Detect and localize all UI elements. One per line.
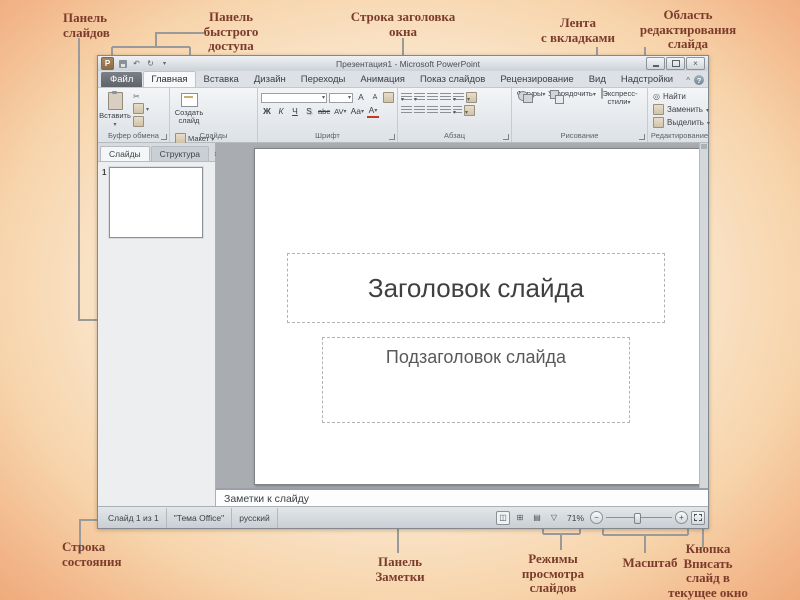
fit-to-window-icon (694, 514, 702, 521)
page: Панель слайдов Панель быстрого доступа С… (0, 0, 800, 600)
change-case-button[interactable]: Aa (350, 106, 365, 117)
window-controls: × (646, 57, 705, 70)
ribbon: Вставить ✂ Буфер обмена Создат (98, 88, 708, 143)
chevron-down-icon (146, 105, 149, 113)
powerpoint-logo-icon[interactable]: P (101, 57, 114, 70)
slide-thumbnail-row: 1 (102, 167, 203, 238)
paste-button[interactable]: Вставить (100, 90, 130, 130)
bullets-button[interactable] (401, 93, 412, 102)
close-button[interactable]: × (686, 57, 705, 70)
slides-panel: Слайды Структура × 1 (98, 143, 216, 508)
annotation-view-modes: Режимы просмотра слайдов (522, 552, 584, 596)
convert-smartart-button[interactable] (464, 105, 475, 116)
align-right-button[interactable] (427, 106, 438, 115)
zoom-slider[interactable] (606, 512, 672, 523)
main-area: Слайды Структура × 1 Заголовок слайда По… (98, 143, 708, 508)
paste-label: Вставить (99, 112, 131, 120)
font-name-select[interactable] (261, 93, 327, 103)
font-group-label: Шрифт (258, 130, 397, 142)
notes-panel[interactable]: Заметки к слайду (216, 488, 708, 508)
chevron-down-icon (542, 89, 545, 98)
format-painter-icon (133, 116, 144, 127)
slide-edit-area: Заголовок слайда Подзаголовок слайда (216, 143, 708, 488)
normal-view-button[interactable]: ◫ (496, 511, 510, 525)
strikethrough-button[interactable]: abc (317, 106, 331, 117)
vertical-scrollbar[interactable] (699, 143, 708, 488)
ribbon-group-clipboard: Вставить ✂ Буфер обмена (98, 88, 170, 142)
dialog-launcher-icon[interactable] (503, 134, 509, 140)
numbering-button[interactable] (414, 93, 425, 102)
replace-label: Заменить (667, 105, 703, 114)
normal-view-icon: ◫ (499, 513, 507, 522)
find-label: Найти (663, 92, 686, 101)
copy-button[interactable] (133, 103, 149, 114)
find-icon: ◎ (653, 92, 660, 101)
tab-file[interactable]: Файл (101, 72, 142, 87)
tab-addins[interactable]: Надстройки (614, 72, 680, 87)
clipboard-icon (108, 92, 123, 110)
find-button[interactable]: ◎Найти (653, 90, 711, 103)
font-color-button[interactable]: А (367, 105, 379, 118)
quick-styles-button[interactable]: Экспресс-стили (596, 90, 642, 130)
minimize-button[interactable] (646, 57, 665, 70)
annotation-ribbon: Лента с вкладками (541, 16, 615, 45)
title-placeholder[interactable]: Заголовок слайда (287, 253, 665, 323)
slide-indicator[interactable]: Слайд 1 из 1 (101, 508, 167, 528)
paragraph-group-label: Абзац (398, 130, 511, 142)
clear-formatting-icon[interactable] (383, 92, 394, 103)
subtitle-placeholder[interactable]: Подзаголовок слайда (322, 337, 630, 423)
ribbon-group-drawing: Фигуры Упорядочить Экспресс-стили Рисова… (512, 88, 648, 142)
annotation-notes-panel: Панель Заметки (375, 555, 424, 584)
dialog-launcher-icon[interactable] (639, 134, 645, 140)
italic-button[interactable]: К (275, 106, 287, 117)
columns-button[interactable] (453, 106, 462, 115)
select-button[interactable]: Выделить (653, 116, 711, 129)
font-size-select[interactable] (329, 93, 353, 103)
character-spacing-button[interactable]: AV (333, 106, 347, 117)
decrease-indent-button[interactable] (427, 93, 438, 102)
slideshow-icon: ▽ (551, 513, 557, 522)
theme-indicator[interactable]: "Тема Office" (167, 508, 232, 528)
tab-insert[interactable]: Вставка (197, 72, 246, 87)
ribbon-group-font: A A Ж К Ч S abc AV Aa А Шрифт (258, 88, 398, 142)
restore-icon (672, 60, 680, 67)
restore-button[interactable] (666, 57, 685, 70)
chevron-down-icon (706, 105, 709, 114)
select-label: Выделить (667, 118, 704, 127)
title-bar[interactable]: P ↶ ↻ Презентация1 - Microsoft PowerPoin… (98, 56, 708, 71)
ribbon-group-editing: ◎Найти Заменить Выделить Редактирование (648, 88, 711, 142)
tab-outline[interactable]: Структура (151, 146, 209, 161)
tab-slides-thumbnails[interactable]: Слайды (100, 146, 150, 161)
reading-view-button[interactable]: ▤ (530, 511, 544, 525)
collapse-ribbon-icon[interactable]: ^ (686, 76, 690, 85)
help-button[interactable]: ? (694, 75, 704, 85)
new-slide-label: Создать слайд (175, 109, 204, 126)
save-icon (119, 60, 127, 68)
format-painter-button[interactable] (133, 116, 149, 127)
slide-thumbnail[interactable] (109, 167, 203, 238)
tab-view[interactable]: Вид (582, 72, 613, 87)
save-button[interactable] (117, 58, 128, 69)
slide-number: 1 (102, 167, 106, 238)
chevron-down-icon (627, 97, 630, 106)
tab-animations[interactable]: Анимация (353, 72, 412, 87)
zoom-slider-thumb[interactable] (634, 513, 641, 524)
cut-button[interactable]: ✂ (133, 93, 149, 101)
language-indicator[interactable]: русский (232, 508, 278, 528)
dialog-launcher-icon[interactable] (161, 134, 167, 140)
annotation-title-bar: Строка заголовка окна (351, 10, 455, 39)
new-slide-icon (181, 93, 198, 107)
annotation-fit-button: Кнопка Вписать слайд в текущее окно (668, 542, 748, 600)
slide-sorter-button[interactable]: ⊞ (513, 511, 527, 525)
slides-panel-tabs: Слайды Структура × (98, 143, 215, 162)
fit-to-window-button[interactable] (691, 511, 705, 525)
quick-styles-label: Экспресс-стили (603, 89, 638, 106)
grow-font-button[interactable]: A (355, 92, 367, 103)
ribbon-group-paragraph: Абзац (398, 88, 512, 142)
align-left-button[interactable] (401, 106, 412, 115)
replace-icon (653, 104, 664, 115)
tab-home[interactable]: Главная (143, 71, 195, 87)
scissors-icon: ✂ (133, 93, 140, 101)
reading-view-icon: ▤ (533, 513, 541, 522)
arrange-button[interactable]: Упорядочить (548, 90, 596, 130)
tab-transitions[interactable]: Переходы (294, 72, 353, 87)
tab-review[interactable]: Рецензирование (493, 72, 580, 87)
undo-icon: ↶ (133, 59, 140, 68)
editing-group-label: Редактирование (648, 130, 711, 142)
shapes-button[interactable]: Фигуры (514, 90, 548, 130)
status-bar: Слайд 1 из 1 "Тема Office" русский ◫ ⊞ ▤… (98, 506, 708, 528)
zoom-out-button[interactable]: − (590, 511, 603, 524)
slide-sorter-icon: ⊞ (517, 513, 524, 522)
text-shadow-button[interactable]: S (303, 106, 315, 117)
quick-access-toolbar: P ↶ ↻ (101, 57, 170, 70)
slides-group-label: Слайды (170, 130, 257, 142)
underline-button[interactable]: Ч (289, 106, 301, 117)
text-direction-button[interactable] (466, 92, 477, 103)
align-center-button[interactable] (414, 106, 425, 115)
annotation-status-bar: Строка состояния (62, 540, 122, 569)
zoom-level[interactable]: 71% (564, 513, 587, 523)
redo-icon: ↻ (147, 59, 154, 68)
ribbon-tab-row: Файл Главная Вставка Дизайн Переходы Ани… (98, 71, 708, 88)
redo-button[interactable]: ↻ (145, 58, 156, 69)
annotation-edit-area: Область редактирования слайда (640, 8, 736, 52)
zoom-in-button[interactable]: + (675, 511, 688, 524)
qat-customize-button[interactable] (159, 58, 170, 69)
justify-button[interactable] (440, 106, 451, 115)
line-spacing-button[interactable] (453, 93, 464, 102)
minimize-icon (653, 65, 659, 67)
select-icon (653, 117, 664, 128)
annotation-slides-panel: Панель слайдов (63, 11, 110, 40)
replace-button[interactable]: Заменить (653, 103, 711, 116)
copy-icon (133, 103, 144, 114)
chevron-down-icon (113, 120, 116, 129)
tab-slideshow[interactable]: Показ слайдов (413, 72, 492, 87)
increase-indent-button[interactable] (440, 93, 451, 102)
ribbon-group-slides: Создать слайд Макет Восстановить Раздел … (170, 88, 258, 142)
window-title: Презентация1 - Microsoft PowerPoint (170, 59, 646, 69)
chevron-down-icon (707, 118, 710, 127)
shrink-font-button[interactable]: A (369, 92, 381, 103)
slideshow-button[interactable]: ▽ (547, 511, 561, 525)
bold-button[interactable]: Ж (261, 106, 273, 117)
clipboard-group-label: Буфер обмена (98, 130, 169, 142)
undo-button[interactable]: ↶ (131, 58, 142, 69)
slide-canvas[interactable]: Заголовок слайда Подзаголовок слайда (254, 148, 705, 485)
drawing-group-label: Рисование (512, 130, 647, 142)
tab-design[interactable]: Дизайн (247, 72, 293, 87)
close-icon: × (693, 60, 698, 68)
annotation-quick-access: Панель быстрого доступа (204, 10, 259, 54)
notes-placeholder-text: Заметки к слайду (224, 493, 309, 505)
dialog-launcher-icon[interactable] (389, 134, 395, 140)
powerpoint-window: P ↶ ↻ Презентация1 - Microsoft PowerPoin… (97, 55, 709, 529)
new-slide-button[interactable]: Создать слайд (172, 90, 206, 130)
